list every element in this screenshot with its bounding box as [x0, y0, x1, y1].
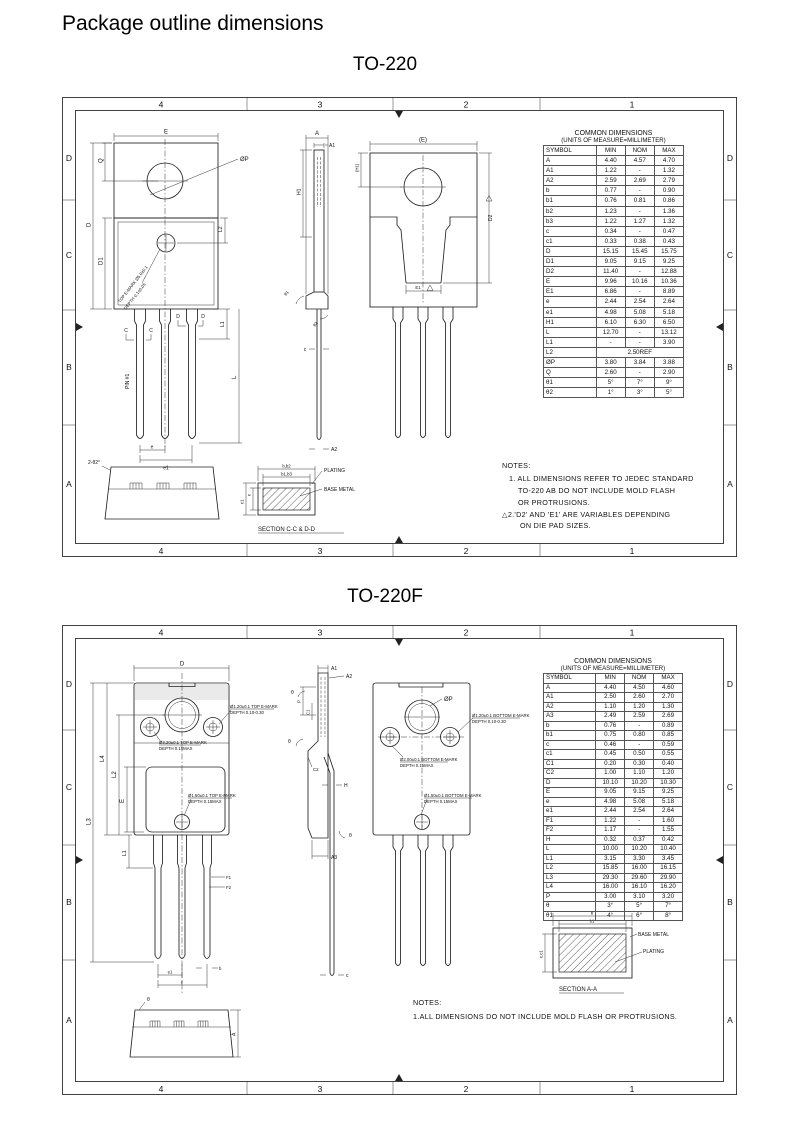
- dim-cell: L3: [544, 873, 596, 883]
- dim-cell: c1: [544, 236, 597, 246]
- dim-cell: 11.40: [596, 267, 625, 277]
- zone-label: 2: [464, 1084, 469, 1094]
- column-header: NOM: [625, 674, 654, 684]
- dim-label: θ: [288, 739, 291, 745]
- annotation: Ø3.20±0.1 TOP E-MARK: [159, 740, 207, 745]
- zone-label: 3: [318, 1084, 323, 1094]
- dim-cell: 3.80: [596, 357, 625, 367]
- table-row: L215.8516.0016.15: [544, 864, 683, 874]
- dim-cell: e1: [544, 807, 596, 817]
- dim-cell: C2: [544, 769, 596, 779]
- dim-label: A: [315, 131, 319, 137]
- section-caption: SECTION C-C & D-D: [258, 527, 316, 533]
- dim-label: A: [232, 1032, 238, 1036]
- zone-label: B: [727, 897, 733, 907]
- table-row: F21.17-1.55: [544, 826, 683, 836]
- dim-label: ØP: [444, 697, 453, 703]
- dim-cell: A2: [544, 176, 597, 186]
- table-row: A4.404.504.60: [544, 683, 683, 693]
- dim-label: L1: [220, 321, 226, 327]
- dim-label: L3: [87, 818, 93, 825]
- table-row: D15.1515.4515.75: [544, 246, 684, 256]
- notes-line: ON DIE PAD SIZES.: [520, 521, 591, 530]
- dim-label: θ: [349, 833, 352, 839]
- table-row: L22.50REF: [544, 347, 684, 357]
- dim-label: e: [151, 445, 154, 451]
- dim-cell: A3: [544, 712, 596, 722]
- notes-line: 1. ALL DIMENSIONS REFER TO JEDEC STANDAR…: [509, 474, 694, 483]
- dim-label: A3: [331, 855, 337, 861]
- dim-cell: 0.81: [625, 196, 654, 206]
- base-metal-label: BASE METAL: [638, 932, 669, 938]
- dim-cell: 3.90: [654, 337, 683, 347]
- dim-cell: 1.55: [654, 826, 683, 836]
- dim-cell: 2.79: [654, 176, 683, 186]
- table-row: ØP3.803.843.88: [544, 357, 684, 367]
- dim-label: C1: [306, 709, 311, 715]
- dim-cell: 0.40: [654, 759, 683, 769]
- dim-cell: 5°: [596, 378, 625, 388]
- dim-cell: D1: [544, 257, 597, 267]
- dimension-table: SYMBOLMINNOMMAXA4.404.574.70A11.22-1.32A…: [543, 145, 684, 398]
- table-row: H0.320.370.42: [544, 835, 683, 845]
- table-row: L1--3.90: [544, 337, 684, 347]
- dim-cell: 0.80: [625, 731, 654, 741]
- column-header: MAX: [654, 674, 683, 684]
- table-row: A12.502.602.70: [544, 693, 683, 703]
- table-row: D19.059.159.25: [544, 257, 684, 267]
- dim-cell: 1.00: [596, 769, 625, 779]
- dim-label: c: [247, 493, 252, 496]
- dim-cell: b1: [544, 731, 596, 741]
- dim-cell: e: [544, 797, 596, 807]
- table-row: L416.0016.1016.20: [544, 883, 683, 893]
- dim-cell: -: [625, 337, 654, 347]
- table-row: e4.985.085.18: [544, 797, 683, 807]
- dim-cell: C1: [544, 759, 596, 769]
- to220f-notes: NOTES: 1.ALL DIMENSIONS DO NOT INCLUDE M…: [413, 998, 677, 1021]
- table-row: b0.77-0.90: [544, 186, 684, 196]
- dim-cell: 2.60: [625, 693, 654, 703]
- table-row: A11.22-1.32: [544, 166, 684, 176]
- dim-label: L2: [218, 226, 224, 232]
- dim-cell: θ1: [544, 911, 596, 921]
- notes-line: NOTES:: [413, 998, 442, 1007]
- dim-cell: 2.64: [654, 807, 683, 817]
- dim-cell: 0.38: [625, 236, 654, 246]
- dim-cell: -: [625, 826, 654, 836]
- dim-cell: 0.90: [654, 186, 683, 196]
- table-row: L10.0010.2010.40: [544, 845, 683, 855]
- table-row: b31.221.271.32: [544, 216, 684, 226]
- dim-cell: 1.20: [654, 769, 683, 779]
- dim-label: (E): [419, 138, 427, 144]
- notes-line: OR PROTRUSIONS.: [518, 498, 590, 507]
- dim-cell: 1.60: [654, 816, 683, 826]
- zone-label: D: [727, 679, 733, 689]
- zone-label: 2: [464, 628, 469, 638]
- annotation: DEPTH 0.15MAX: [188, 799, 222, 804]
- sheet-title-to220: TO-220: [0, 54, 770, 76]
- to220f-front-view: D L3 L4 L2 E L1 F1 F2 e1 e b: [87, 662, 278, 994]
- dim-label: θ: [147, 997, 150, 1003]
- dim-cell: 4.98: [596, 307, 625, 317]
- dim-label: c: [304, 347, 307, 353]
- section-cut-label: D: [176, 314, 180, 320]
- section-cut-label: D: [201, 314, 205, 320]
- dim-cell: 3°: [625, 388, 654, 398]
- annotation: Ø1.50±0.1 TOP E-MARK: [188, 793, 236, 798]
- dim-cell: 9.15: [625, 257, 654, 267]
- table-row: C10.200.300.40: [544, 759, 683, 769]
- zone-label: D: [66, 679, 72, 689]
- table-row: C21.001.101.20: [544, 769, 683, 779]
- table-subtitle: (UNITS OF MEASURE=MILLIMETER): [543, 137, 684, 144]
- table-row: E1△6.86-8.89: [544, 287, 684, 297]
- dim-cell: 0.45: [596, 750, 625, 760]
- dim-cell: 0.77: [596, 186, 625, 196]
- dim-cell: 2.59: [596, 176, 625, 186]
- table-row: H16.106.306.50: [544, 317, 684, 327]
- to220f-bottom-view: θ A: [130, 997, 241, 1057]
- table-row: θ21°3°5°: [544, 388, 684, 398]
- dim-cell: 0.89: [654, 721, 683, 731]
- dim-cell: -: [625, 267, 654, 277]
- dim-cell: 16.00: [596, 883, 625, 893]
- dim-cell: 4°: [596, 911, 625, 921]
- dim-cell: 0.30: [625, 759, 654, 769]
- to220-sheet: 4 3 2 1 4 3 2 1 D C B A D C B A: [62, 97, 737, 557]
- dim-cell: b: [544, 721, 596, 731]
- table-row: c0.34-0.47: [544, 226, 684, 236]
- dim-cell: 6°: [625, 911, 654, 921]
- dim-cell: 0.33: [596, 236, 625, 246]
- dim-label: c: [346, 973, 349, 979]
- zone-label: A: [727, 479, 733, 489]
- plating-label: PLATING: [324, 468, 345, 474]
- table-row: L329.3029.6029.90: [544, 873, 683, 883]
- annotation: DEPTH 0.15MAX: [400, 763, 434, 768]
- dim-cell: H1: [544, 317, 597, 327]
- dim-cell: 9.15: [625, 788, 654, 798]
- dim-cell: 10.00: [596, 845, 625, 855]
- dim-cell: L△: [544, 327, 597, 337]
- dim-label: H: [344, 783, 348, 789]
- dim-label: H1: [297, 188, 303, 195]
- dim-cell: 2.44: [596, 807, 625, 817]
- dim-label: 2-θ2°: [88, 460, 100, 466]
- dim-cell: -: [625, 816, 654, 826]
- dim-cell: 2.64: [654, 297, 683, 307]
- plating-label: PLATING: [643, 949, 664, 955]
- annotation: DEPTH 0.10-0.30: [472, 719, 507, 724]
- table-body: SYMBOLMINNOMMAXA4.404.504.60A12.502.602.…: [543, 673, 683, 921]
- annotation: DEPTH 0.10-0.30: [230, 710, 265, 715]
- dim-cell: 2.69: [625, 176, 654, 186]
- dim-label: ØP: [240, 157, 249, 163]
- dim-cell: 2.60: [596, 368, 625, 378]
- dim-cell: -: [596, 337, 625, 347]
- to220f-dimensions-table: COMMON DIMENSIONS (UNITS OF MEASURE=MILL…: [543, 658, 683, 921]
- dim-cell: 2.44: [596, 297, 625, 307]
- pin1-label: PIN #1: [125, 373, 131, 389]
- dim-cell: 1.27: [625, 216, 654, 226]
- dim-cell: E: [544, 277, 597, 287]
- dim-cell: 0.42: [654, 835, 683, 845]
- dim-cell: 29.90: [654, 873, 683, 883]
- annotation: DEPTH 0.15MAX: [159, 746, 193, 751]
- dim-cell: c1: [544, 750, 596, 760]
- dim-cell: θ2: [544, 388, 597, 398]
- dim-label: L1: [122, 850, 128, 856]
- dim-cell: A: [544, 156, 597, 166]
- dim-cell: L1: [544, 337, 597, 347]
- dim-cell: 3.45: [654, 854, 683, 864]
- table-row: P3.003.103.20: [544, 892, 683, 902]
- dim-cell: ØP: [544, 357, 597, 367]
- zone-label: 4: [159, 100, 164, 110]
- dim-cell: 8.89: [654, 287, 683, 297]
- dim-label: F1: [226, 875, 232, 880]
- to220-section-view: b,b2 b1,b3 c c1 PLATING BASE METAL SECTI…: [240, 464, 356, 534]
- dim-label: (H1): [355, 163, 360, 172]
- dim-label: E: [120, 799, 126, 803]
- zone-label: C: [66, 782, 72, 792]
- dim-cell: 9.05: [596, 788, 625, 798]
- notes-line: NOTES:: [502, 461, 531, 470]
- dim-cell: 2.54: [625, 807, 654, 817]
- zone-label: 4: [159, 546, 164, 556]
- dim-cell: -: [625, 368, 654, 378]
- table-row: Q2.60-2.90: [544, 368, 684, 378]
- dim-cell: 15.75: [654, 246, 683, 256]
- dim-cell: 10.30: [654, 778, 683, 788]
- to220-back-view: (E) (H1) E1 D2: [355, 138, 495, 438]
- zone-label: C: [66, 250, 72, 260]
- dim-cell: 0.20: [596, 759, 625, 769]
- column-header: MAX: [654, 146, 683, 156]
- to220f-sheet: 4 3 2 1 4 3 2 1 D C B A D C B A: [62, 625, 737, 1095]
- table-row: b0.76-0.89: [544, 721, 683, 731]
- dim-cell: e1△: [544, 307, 597, 317]
- dim-cell: -: [625, 226, 654, 236]
- dim-cell: 5.08: [625, 307, 654, 317]
- page: Package outline dimensions TO-220 TO-220…: [0, 0, 800, 1131]
- dim-cell: 4.50: [625, 683, 654, 693]
- notes-line: △2.'D2' AND 'E1' ARE VARIABLES DEPENDING: [502, 510, 670, 519]
- dim-label: A2: [346, 674, 352, 680]
- dim-cell: Q: [544, 368, 597, 378]
- dim-label: e1: [168, 970, 173, 975]
- dim-cell: 2.59: [625, 712, 654, 722]
- section-cut-label: C: [124, 328, 128, 334]
- dim-cell: 29.60: [625, 873, 654, 883]
- dim-cell: 0.59: [654, 740, 683, 750]
- dim-cell: D: [544, 246, 597, 256]
- dim-cell: -: [625, 327, 654, 337]
- zone-label: 2: [464, 100, 469, 110]
- table-row: F11.22-1.60: [544, 816, 683, 826]
- table-row: e△2.442.542.64: [544, 297, 684, 307]
- dim-cell: 4.57: [625, 156, 654, 166]
- dim-cell: -: [625, 186, 654, 196]
- dim-cell: 0.75: [596, 731, 625, 741]
- annotation: Ø1.20±0.1 BOTTOM E-MARK: [472, 713, 530, 718]
- dim-cell: 3.15: [596, 854, 625, 864]
- section-caption: SECTION A-A: [559, 987, 597, 993]
- dim-label: b: [219, 966, 222, 971]
- dim-cell: 0.86: [654, 196, 683, 206]
- zone-label: 4: [159, 1084, 164, 1094]
- dim-cell: -: [625, 166, 654, 176]
- table-row: D10.1010.2010.30: [544, 778, 683, 788]
- dim-cell: 1°: [596, 388, 625, 398]
- dim-cell: 1.20: [625, 702, 654, 712]
- zone-label: D: [66, 153, 72, 163]
- annotation: Ø2.00±0.1 BOTTOM E-MARK: [400, 757, 458, 762]
- dim-cell: L4: [544, 883, 596, 893]
- annotation: Ø1.50±0.1 BOTTOM E-MARK: [424, 793, 482, 798]
- zone-label: 3: [318, 546, 323, 556]
- dim-cell: b1: [544, 196, 597, 206]
- dim-label: C2: [313, 767, 319, 772]
- dim-cell: 7°: [654, 902, 683, 912]
- dim-cell: F1: [544, 816, 596, 826]
- dim-cell: 12.88: [654, 267, 683, 277]
- dim-cell: 1.10: [625, 769, 654, 779]
- dim-cell: 3.84: [625, 357, 654, 367]
- dim-cell: 10.40: [654, 845, 683, 855]
- dim-cell: 16.10: [625, 883, 654, 893]
- table-row: A22.592.692.79: [544, 176, 684, 186]
- dim-label: Q: [99, 158, 105, 163]
- zone-label: A: [66, 1015, 72, 1025]
- dim-cell: F2: [544, 826, 596, 836]
- dim-label: D2: [488, 214, 494, 221]
- dim-cell: 13.12: [654, 327, 683, 337]
- dim-cell: 0.43: [654, 236, 683, 246]
- dim-cell: 4.60: [654, 683, 683, 693]
- dim-label: L2: [112, 771, 118, 778]
- dim-cell: 3°: [596, 902, 625, 912]
- dim-cell: 1.36: [654, 206, 683, 216]
- dim-label: P: [297, 700, 302, 703]
- column-header: MIN: [596, 674, 625, 684]
- dim-cell: 9°: [654, 378, 683, 388]
- dim-cell: 9.25: [654, 257, 683, 267]
- dim-cell: 10.10: [596, 778, 625, 788]
- zone-label: 2: [464, 546, 469, 556]
- base-metal-label: BASE METAL: [324, 487, 355, 493]
- dim-cell: -: [625, 740, 654, 750]
- dim-cell: 1.22: [596, 166, 625, 176]
- dim-cell: 0.50: [625, 750, 654, 760]
- dim-label: c1: [240, 499, 245, 504]
- dim-label: E1: [415, 285, 421, 290]
- dim-cell: b2: [544, 206, 597, 216]
- dim-cell: 4.40: [596, 156, 625, 166]
- dim-cell: 3.88: [654, 357, 683, 367]
- sheet-title-to220f: TO-220F: [0, 586, 770, 608]
- dim-cell: 1.32: [654, 216, 683, 226]
- to220f-section-view: b b1 c,c1 BASE METAL PLATING SECTION A-A: [539, 911, 670, 994]
- table-row: c0.46-0.59: [544, 740, 683, 750]
- dim-cell: 7°: [625, 378, 654, 388]
- dim-cell: 16.15: [654, 864, 683, 874]
- zone-label: 1: [630, 1084, 635, 1094]
- dim-cell: A2: [544, 702, 596, 712]
- table-row: A4.404.574.70: [544, 156, 684, 166]
- dim-cell: 3.30: [625, 854, 654, 864]
- annotation: DEPTH 0.15MAX: [424, 799, 458, 804]
- zone-label: 3: [318, 628, 323, 638]
- zone-label: 1: [630, 546, 635, 556]
- table-row: E9.059.159.25: [544, 788, 683, 798]
- dim-cell: θ: [544, 902, 596, 912]
- dim-label: θ2: [312, 320, 319, 327]
- dim-label: b1,b3: [281, 472, 292, 477]
- notes-line: TO-220 AB DO NOT INCLUDE MOLD FLASH: [518, 486, 675, 495]
- dim-cell: 0.47: [654, 226, 683, 236]
- zone-label: C: [727, 782, 733, 792]
- dim-cell: 0.76: [596, 721, 625, 731]
- dim-cell: b: [544, 186, 597, 196]
- dim-cell: 3.20: [654, 892, 683, 902]
- notes-line: 1.ALL DIMENSIONS DO NOT INCLUDE MOLD FLA…: [413, 1012, 677, 1021]
- page-title: Package outline dimensions: [62, 12, 324, 36]
- table-row: D2△11.40-12.88: [544, 267, 684, 277]
- dim-label: L4: [100, 755, 106, 762]
- dim-cell: 2.69: [654, 712, 683, 722]
- dim-cell: -: [625, 206, 654, 216]
- dim-label: A1: [331, 666, 337, 672]
- dim-cell: D2△: [544, 267, 597, 277]
- dim-cell: e△: [544, 297, 597, 307]
- zone-label: B: [66, 897, 72, 907]
- dim-label: b,b2: [282, 464, 291, 469]
- column-header: NOM: [625, 146, 654, 156]
- table-row: c10.450.500.55: [544, 750, 683, 760]
- dim-cell: 6.10: [596, 317, 625, 327]
- table-row: e12.442.542.64: [544, 807, 683, 817]
- table-row: E9.9610.1610.36: [544, 277, 684, 287]
- dim-label: e: [181, 980, 184, 985]
- annotation: Ø1.20±0.1 TOP E-MARK: [230, 704, 278, 709]
- dim-cell: 15.85: [596, 864, 625, 874]
- zone-label: 1: [630, 100, 635, 110]
- dim-cell: 1.30: [654, 702, 683, 712]
- dim-cell: 6.30: [625, 317, 654, 327]
- dim-cell: 0.46: [596, 740, 625, 750]
- dim-cell: 1.32: [654, 166, 683, 176]
- dim-cell: 8°: [654, 911, 683, 921]
- to220-dimensions-table: COMMON DIMENSIONS (UNITS OF MEASURE=MILL…: [543, 130, 684, 398]
- zone-label: B: [727, 362, 733, 372]
- dim-label: F2: [226, 885, 232, 890]
- dim-cell: 0.85: [654, 731, 683, 741]
- table-row: θ15°7°9°: [544, 378, 684, 388]
- dim-label: E: [164, 130, 168, 136]
- dim-label: D: [87, 222, 93, 227]
- dim-label: D: [180, 662, 185, 668]
- to220-notes: NOTES: 1. ALL DIMENSIONS REFER TO JEDEC …: [502, 461, 694, 530]
- dim-cell: 3.10: [625, 892, 654, 902]
- table-row: e1△4.985.085.18: [544, 307, 684, 317]
- dim-cell: P: [544, 892, 596, 902]
- table-row: L13.153.303.45: [544, 854, 683, 864]
- dim-cell: 9.05: [596, 257, 625, 267]
- table-row: θ14°6°8°: [544, 911, 683, 921]
